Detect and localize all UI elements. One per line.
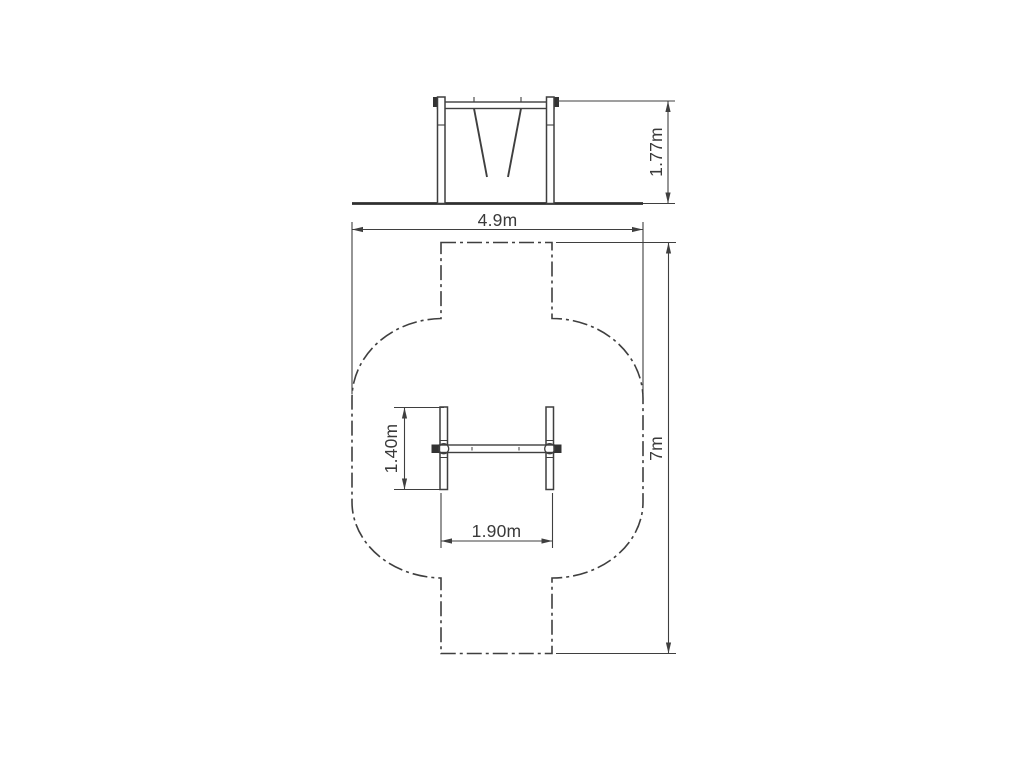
arrowhead-up xyxy=(402,408,407,419)
left-swing-chain xyxy=(474,109,487,178)
technical-drawing-canvas: 1.77m 4.9m 7m 1.40m 1.90m xyxy=(0,0,1024,768)
arrowhead-right xyxy=(542,538,553,543)
right-swing-chain xyxy=(508,109,521,178)
plan-crossbar xyxy=(440,445,555,453)
swing-drawing-svg: 1.77m 4.9m 7m 1.40m 1.90m xyxy=(0,0,1024,768)
dimension-lines xyxy=(352,101,676,654)
arrowhead-left xyxy=(441,538,452,543)
front-elevation-view xyxy=(352,97,643,204)
arrowhead-left xyxy=(352,227,363,232)
right-post xyxy=(547,97,555,204)
zone-length-label: 7m xyxy=(646,436,666,461)
arrowhead-down xyxy=(402,479,407,490)
frame-span-label: 1.90m xyxy=(472,521,522,541)
arrowhead-down xyxy=(665,193,670,204)
frame-height-label: 1.77m xyxy=(646,127,666,177)
top-beam xyxy=(438,102,555,109)
arrowhead-up xyxy=(665,101,670,112)
arrowhead-up xyxy=(666,243,671,254)
dimension-zone-width xyxy=(352,222,643,394)
left-post xyxy=(438,97,446,204)
frame-depth-label: 1.40m xyxy=(381,424,401,474)
arrowhead-right xyxy=(632,227,643,232)
plan-view-frame xyxy=(432,407,562,490)
dimension-labels: 1.77m 4.9m 7m 1.40m 1.90m xyxy=(381,127,666,541)
zone-width-label: 4.9m xyxy=(478,210,518,230)
arrowhead-down xyxy=(666,643,671,654)
